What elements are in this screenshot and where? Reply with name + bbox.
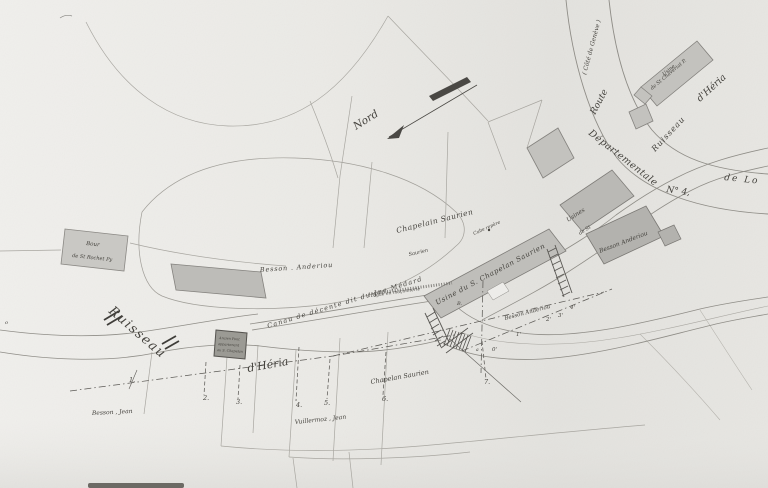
point-2: 2. — [202, 394, 209, 402]
point-1-prime: 1' — [516, 332, 521, 338]
point-b: B. — [456, 301, 463, 307]
scan-edge-smudge — [88, 483, 184, 488]
point-3: 3. — [236, 398, 242, 406]
map-canvas: Nord ( Côté de Genève ) Route Départemen… — [0, 0, 768, 488]
point-3-prime: 3' — [558, 313, 563, 319]
point-2-prime: 2' — [545, 317, 551, 323]
point-5: 5. — [324, 399, 330, 407]
point-4-prime: 4' — [569, 305, 575, 311]
point-1: 1. — [129, 376, 135, 384]
point-6: 6. — [382, 395, 388, 403]
point-o: o — [5, 320, 8, 326]
point-4: 4. — [295, 401, 302, 409]
point-7: 7. — [484, 378, 490, 386]
point-0-prime: 0' — [492, 347, 497, 353]
map-scan: Nord ( Côté de Genève ) Route Départemen… — [0, 0, 768, 488]
point-a: a — [476, 348, 479, 353]
bour-building — [61, 229, 128, 271]
